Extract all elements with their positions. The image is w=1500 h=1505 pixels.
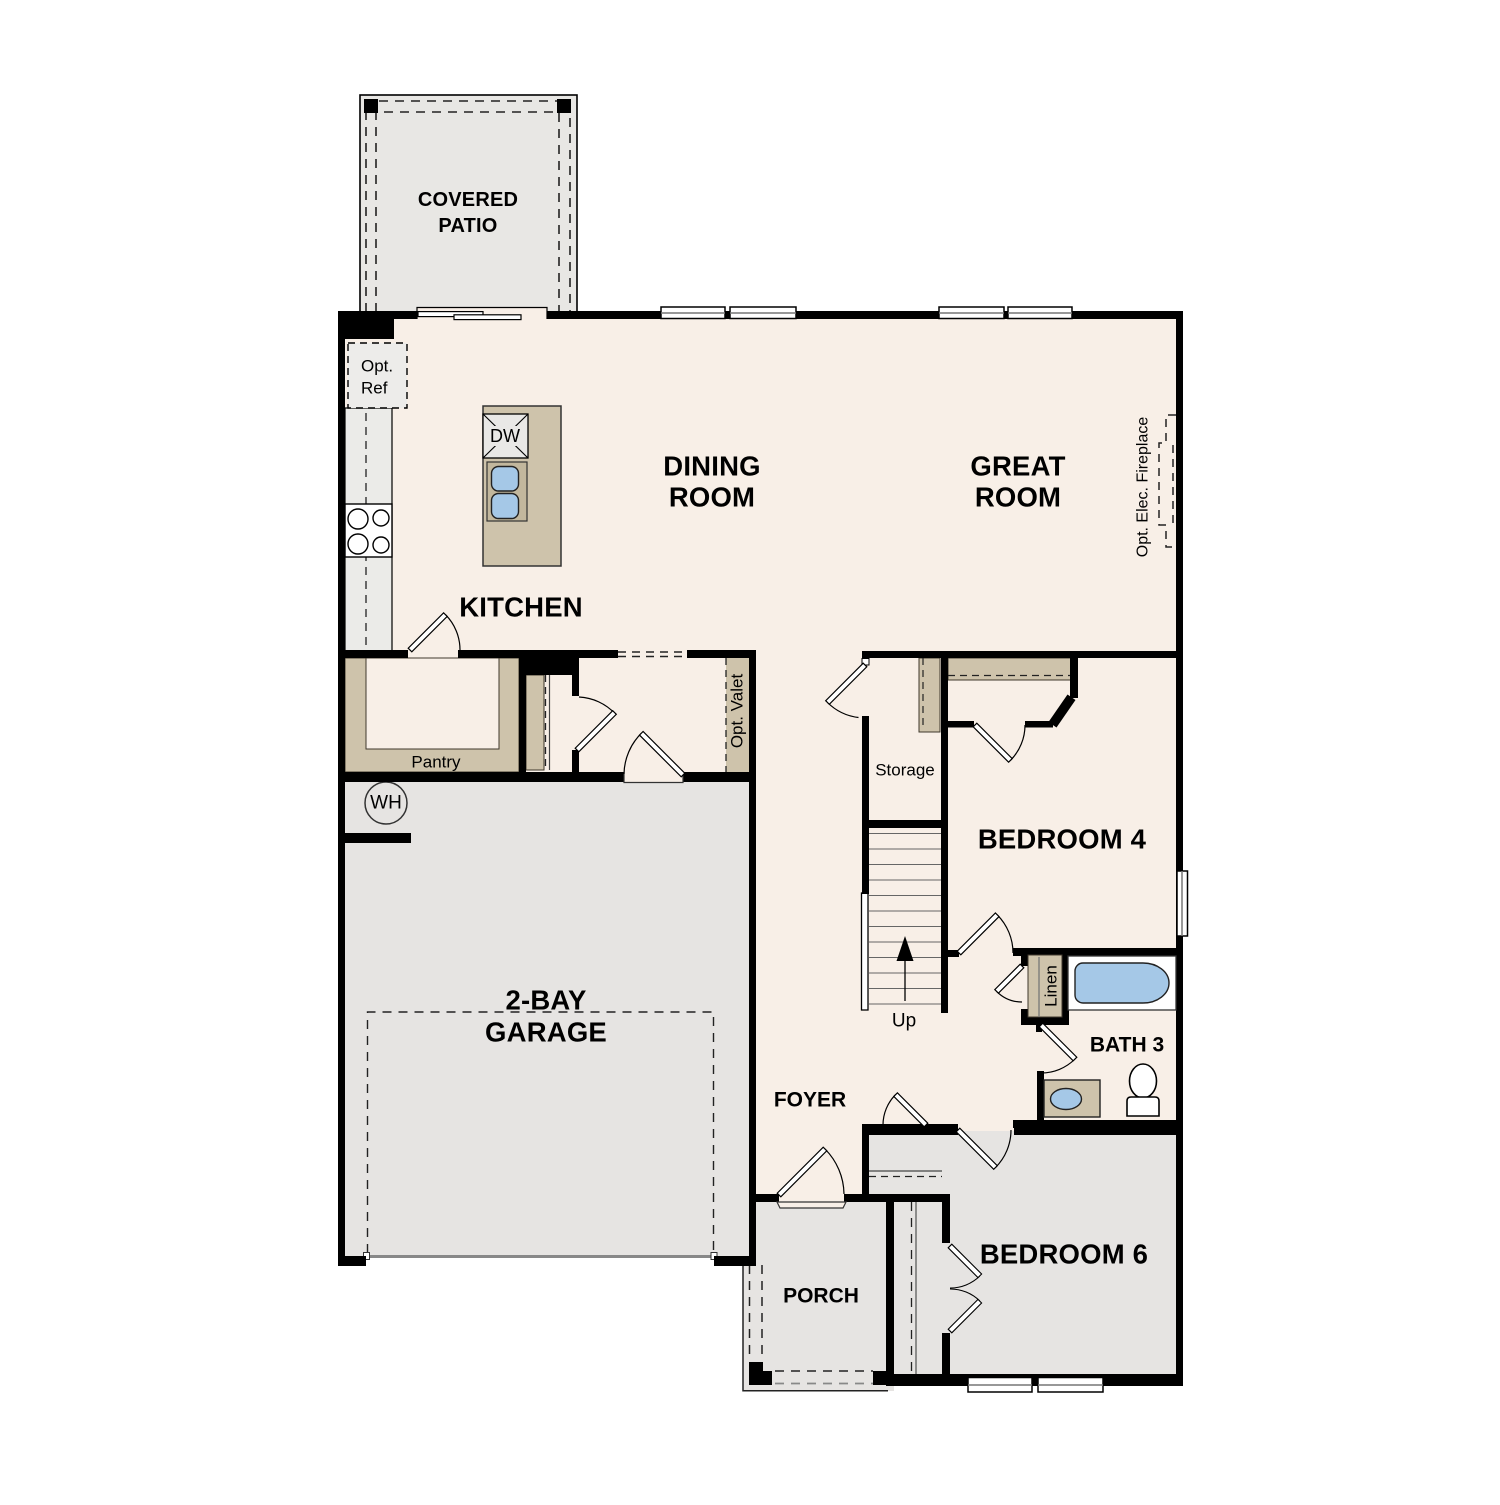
svg-text:KITCHEN: KITCHEN xyxy=(459,592,583,623)
svg-text:GREAT: GREAT xyxy=(970,451,1065,482)
svg-text:FOYER: FOYER xyxy=(774,1089,846,1112)
svg-text:Ref: Ref xyxy=(361,379,388,398)
svg-text:PATIO: PATIO xyxy=(438,215,497,237)
svg-text:Opt. Elec. Fireplace: Opt. Elec. Fireplace xyxy=(1135,417,1152,558)
svg-text:WH: WH xyxy=(370,793,402,814)
svg-text:Storage: Storage xyxy=(875,761,935,780)
svg-text:Pantry: Pantry xyxy=(411,753,461,772)
svg-text:2-BAY: 2-BAY xyxy=(506,985,587,1016)
svg-text:BEDROOM 6: BEDROOM 6 xyxy=(980,1239,1148,1270)
svg-text:PORCH: PORCH xyxy=(783,1285,859,1308)
svg-text:ROOM: ROOM xyxy=(975,482,1061,513)
svg-text:Opt.: Opt. xyxy=(361,357,393,376)
svg-text:BATH 3: BATH 3 xyxy=(1090,1034,1164,1057)
svg-text:GARAGE: GARAGE xyxy=(485,1017,607,1048)
svg-text:Linen: Linen xyxy=(1042,965,1061,1007)
svg-text:BEDROOM 4: BEDROOM 4 xyxy=(978,824,1147,855)
svg-text:ROOM: ROOM xyxy=(669,482,755,513)
svg-text:DW: DW xyxy=(490,426,520,446)
svg-text:DINING: DINING xyxy=(663,451,760,482)
svg-text:Up: Up xyxy=(892,1011,916,1032)
svg-text:COVERED: COVERED xyxy=(418,189,518,211)
svg-text:Opt. Valet: Opt. Valet xyxy=(728,674,747,749)
